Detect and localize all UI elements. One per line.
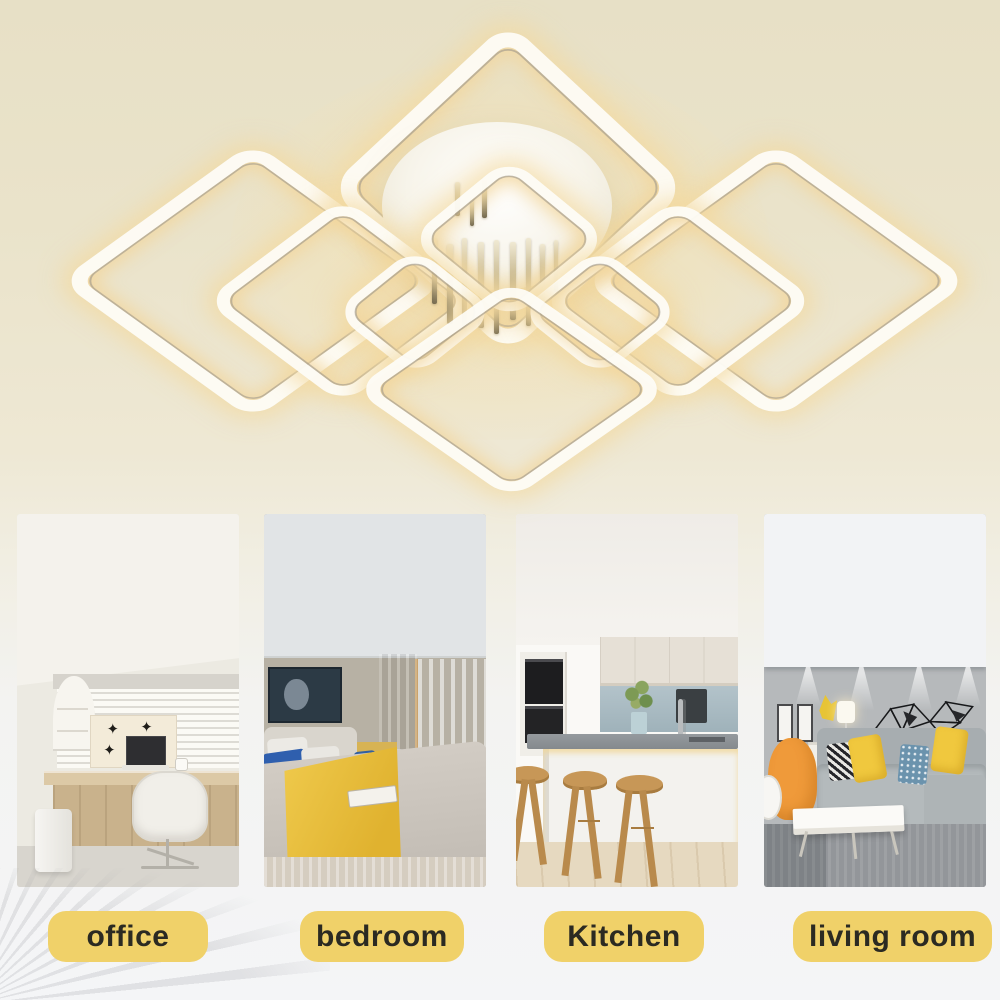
label-office: office <box>48 911 208 962</box>
laptop-screen <box>126 736 166 766</box>
office-shelf <box>57 730 88 732</box>
laptop-base <box>122 765 169 770</box>
sink <box>689 737 725 741</box>
living-ceiling <box>764 514 986 667</box>
yellow-pillow <box>930 726 969 775</box>
office-arched-niche <box>53 676 95 751</box>
label-office-text: office <box>86 920 169 954</box>
kitchen-photo <box>516 514 738 887</box>
wall-oven <box>525 659 563 704</box>
faucet <box>678 699 683 736</box>
picture-frame <box>777 704 793 741</box>
coffee-table <box>792 805 904 835</box>
label-living-room-text: living room <box>809 920 976 954</box>
picture-frame <box>797 704 813 741</box>
office-ceiling <box>17 514 239 686</box>
kitchen-floor <box>516 842 738 887</box>
office-shelf <box>57 708 88 710</box>
bedroom-ceiling <box>264 514 486 656</box>
kitchen-ceiling <box>516 514 738 645</box>
office-chair-back <box>132 771 207 842</box>
diamond-cutout-icon: ✦ <box>140 720 153 735</box>
floor-lamp-shade <box>837 701 855 723</box>
coffee-mug <box>175 758 188 771</box>
label-kitchen-text: Kitchen <box>567 920 681 954</box>
label-bedroom-text: bedroom <box>316 920 448 954</box>
office-photo: ✦ ✦ ✦ ✦ <box>17 514 239 887</box>
living-room-photo <box>764 514 986 887</box>
blue-patterned-pillow <box>898 744 930 786</box>
vase <box>631 712 647 734</box>
wall-art-motif <box>284 679 308 710</box>
label-kitchen: Kitchen <box>544 911 704 962</box>
wall-art <box>268 667 341 723</box>
bar-stool-footrest <box>578 820 600 822</box>
trash-bin <box>35 809 73 872</box>
product-image: ✦ ✦ ✦ ✦ <box>0 0 1000 1000</box>
label-bedroom: bedroom <box>300 911 464 962</box>
label-living-room: living room <box>793 911 992 962</box>
diamond-cutout-icon: ✦ <box>103 743 116 758</box>
bedroom-photo <box>264 514 486 887</box>
diamond-cutout-icon: ✦ <box>106 722 119 737</box>
ceiling-lamp-photo <box>0 0 1000 500</box>
bar-stool-footrest <box>631 827 653 829</box>
